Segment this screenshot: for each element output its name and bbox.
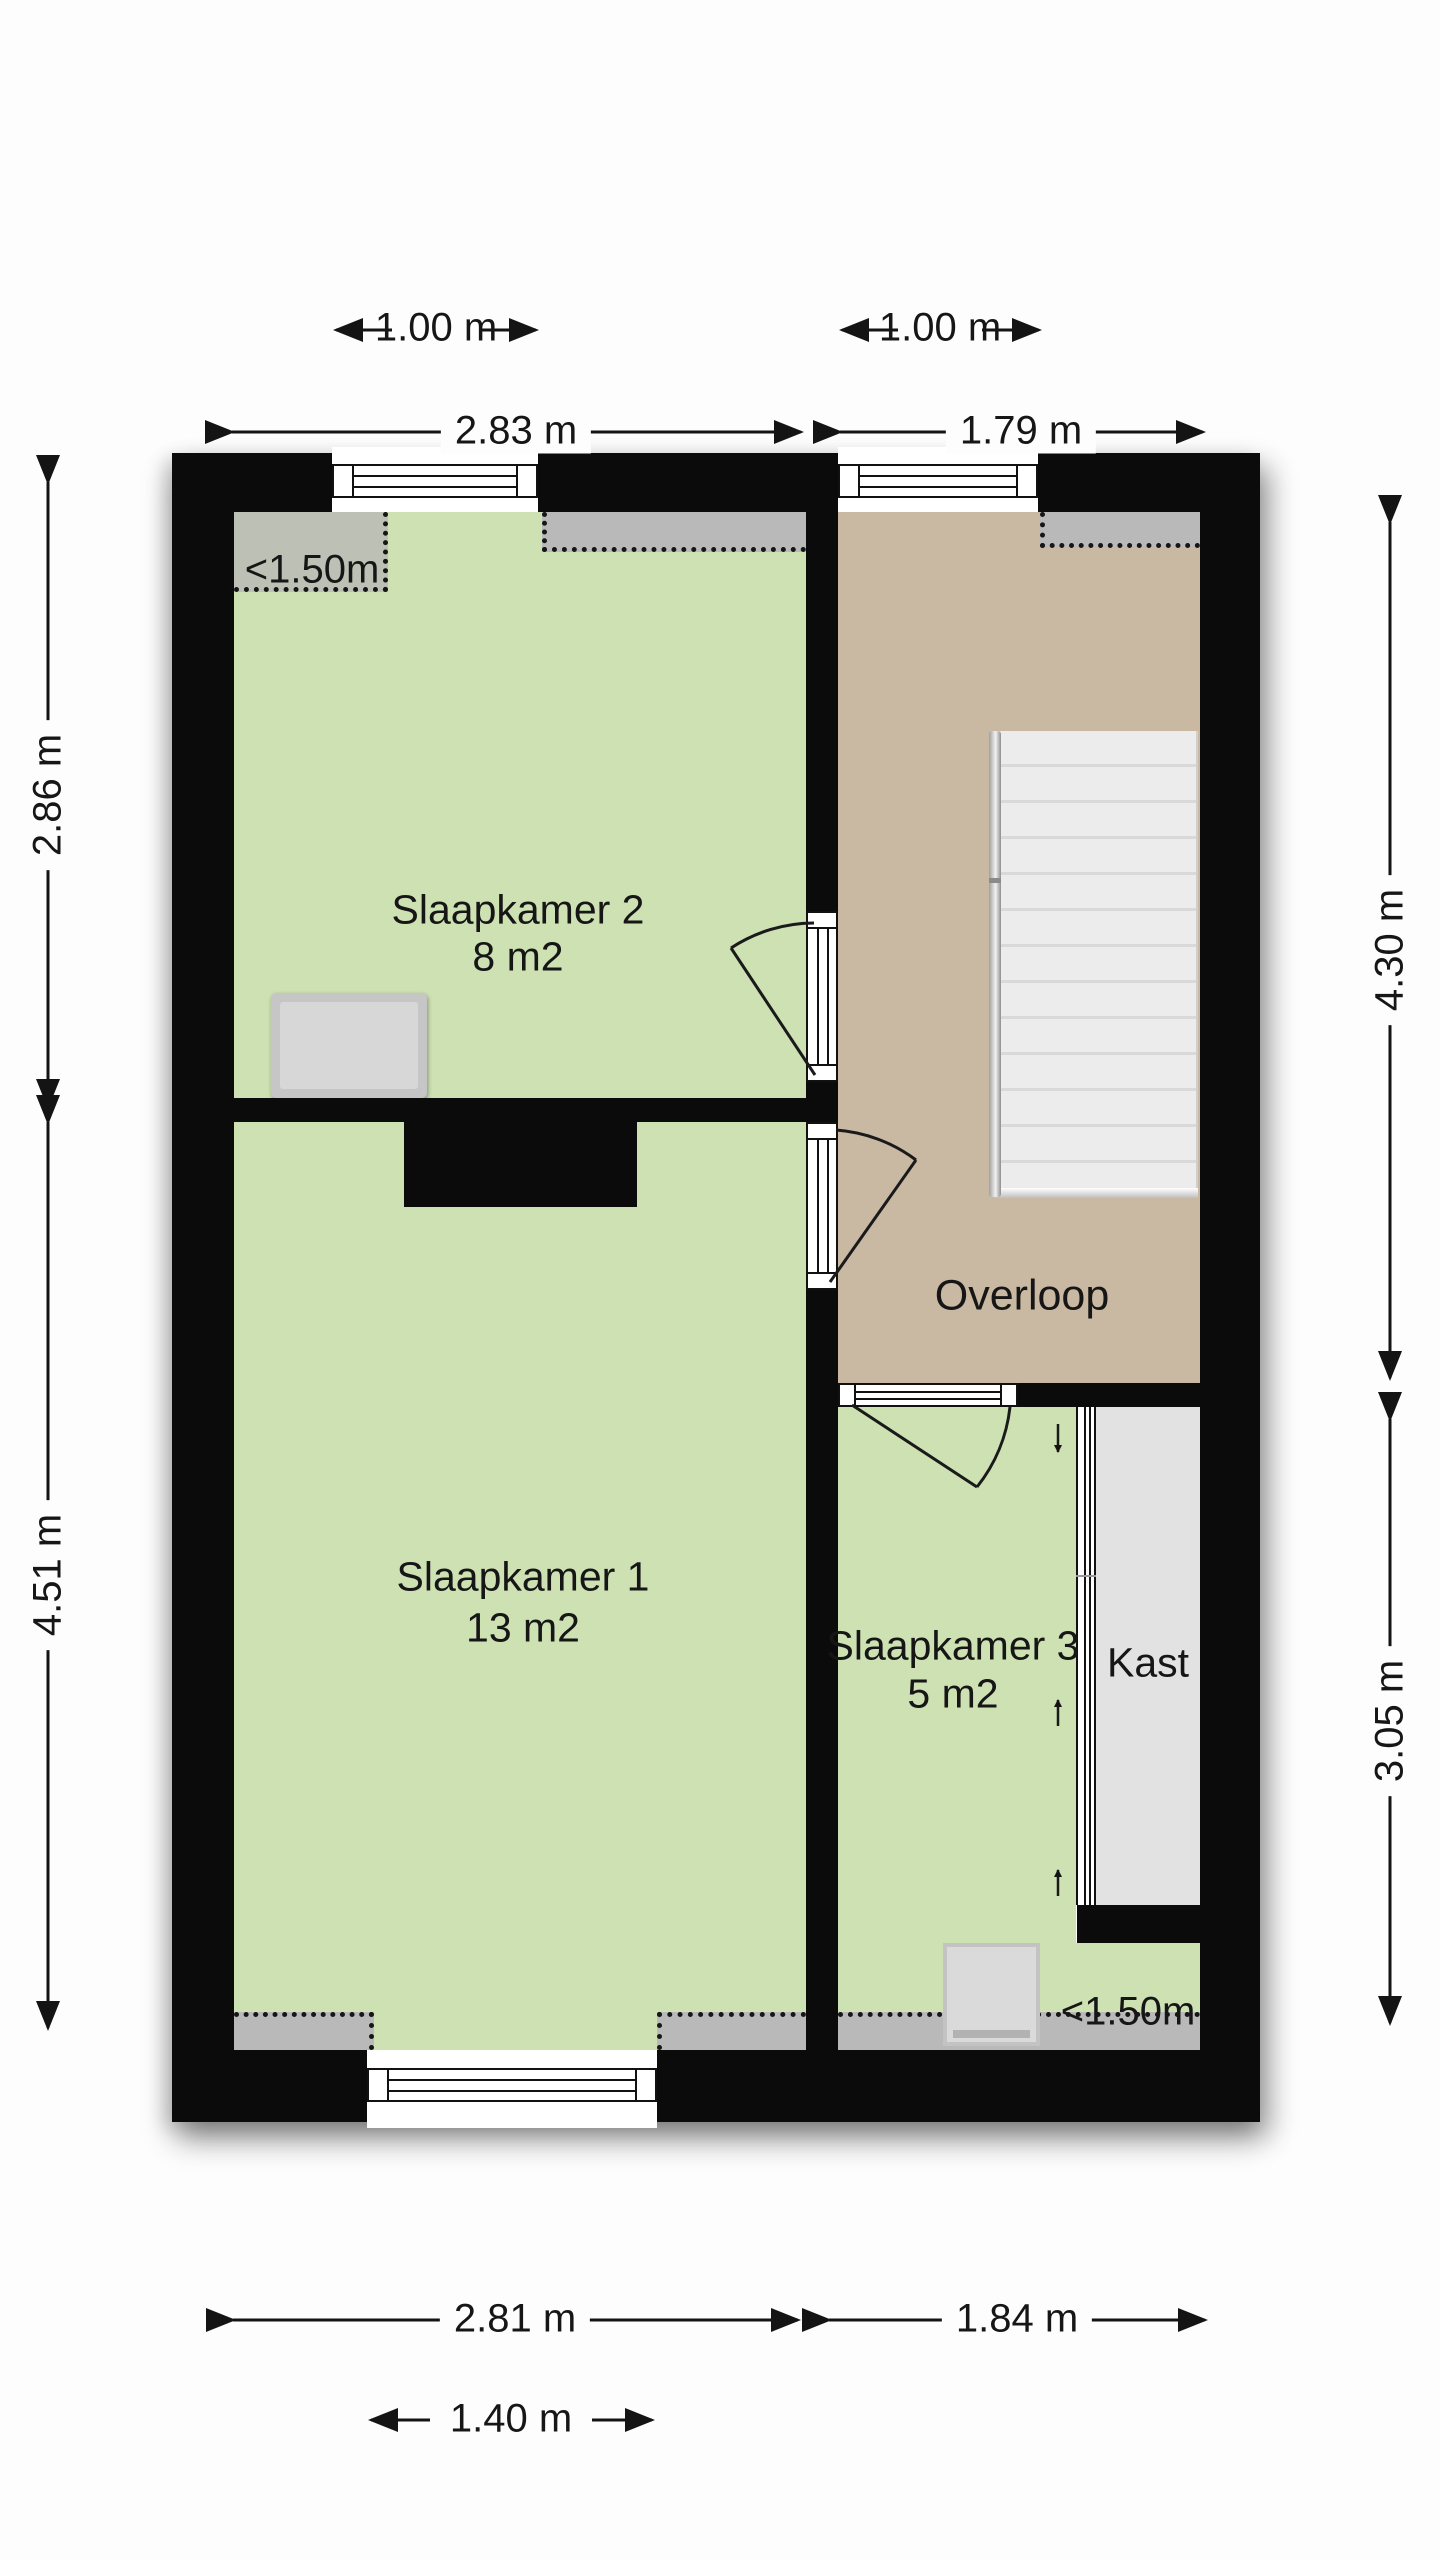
wall-divider-s1-s3 xyxy=(806,1407,838,2050)
floorplan-canvas: 1.00 m 2.83 m 1.00 m 1.79 m 2.86 m 4.51 … xyxy=(0,0,1440,2560)
door-slaapkamer3 xyxy=(838,1383,1018,1407)
dim-bottom-left-span: 2.81 m xyxy=(440,2297,590,2342)
wall-kast-stub xyxy=(1077,1905,1200,1943)
door-slaapkamer2 xyxy=(806,911,838,1082)
wall-right xyxy=(1200,453,1260,2122)
window-slaapkamer2-cap-right xyxy=(516,464,538,498)
room-label-slaapkamer1: Slaapkamer 1 xyxy=(397,1554,650,1601)
low-ceiling-zone-overloop xyxy=(1040,512,1200,548)
dim-bottom-right-span: 1.84 m xyxy=(942,2297,1092,2342)
annotation-low-ceiling-top: <1.50m xyxy=(245,548,380,593)
low-ceiling-zone-s1-right xyxy=(657,2012,806,2050)
door-slaapkamer3-post-right xyxy=(1000,1383,1018,1407)
window-slaapkamer2-cap-left xyxy=(332,464,354,498)
bed-inner xyxy=(280,1002,418,1089)
room-area-slaapkamer3: 5 m2 xyxy=(907,1671,998,1718)
dim-top-right-span: 1.79 m xyxy=(946,409,1096,454)
window-overloop-cap-right xyxy=(1016,464,1038,498)
stairs-railing xyxy=(989,731,1001,1197)
door-slaapkamer2-post-bottom xyxy=(806,1064,838,1082)
object-foot xyxy=(953,2030,1030,2038)
door-slaapkamer3-post-left xyxy=(838,1383,856,1407)
room-label-overloop: Overloop xyxy=(935,1272,1109,1321)
room-label-slaapkamer3: Slaapkamer 3 xyxy=(827,1623,1080,1670)
wall-overloop-s3 xyxy=(1018,1383,1200,1407)
chimney-block xyxy=(404,1122,637,1207)
window-overloop xyxy=(838,464,1038,498)
room-area-slaapkamer2: 8 m2 xyxy=(472,934,563,981)
room-label-kast: Kast xyxy=(1107,1640,1189,1687)
object-slaapkamer3 xyxy=(943,1943,1040,2046)
staircase xyxy=(995,731,1198,1197)
dim-right-upper: 4.30 m xyxy=(1368,875,1413,1025)
wall-divider-s2-s1 xyxy=(234,1098,806,1122)
window-slaapkamer1-cap-left xyxy=(367,2068,389,2102)
window-slaapkamer1-cap-right xyxy=(635,2068,657,2102)
window-slaapkamer1 xyxy=(367,2068,657,2102)
door-slaapkamer1 xyxy=(806,1122,838,1290)
wall-top-middle xyxy=(538,453,838,512)
dim-window-bottom: 1.40 m xyxy=(450,2397,572,2442)
wall-divider-vertical-mid xyxy=(806,1082,838,1122)
dim-left-lower: 4.51 m xyxy=(26,1500,71,1650)
wall-left xyxy=(172,453,234,2122)
dim-window-top-left: 1.00 m xyxy=(375,306,497,351)
dim-left-upper: 2.86 m xyxy=(26,720,71,870)
dim-right-lower: 3.05 m xyxy=(1368,1646,1413,1796)
window-slaapkamer2 xyxy=(332,464,538,498)
stairs-railing-joint xyxy=(989,878,1001,883)
annotation-low-ceiling-bottom: <1.50m xyxy=(1061,1990,1196,2035)
wall-bottom-right xyxy=(657,2050,1260,2122)
dim-top-left-span: 2.83 m xyxy=(441,409,591,454)
door-slaapkamer1-post-top xyxy=(806,1122,838,1140)
dim-window-top-right: 1.00 m xyxy=(879,306,1001,351)
low-ceiling-zone-s1-left xyxy=(234,2012,374,2050)
low-ceiling-zone-s2-right xyxy=(542,512,806,552)
door-slaapkamer1-post-bottom xyxy=(806,1272,838,1290)
wall-divider-vertical-low xyxy=(806,1290,838,1407)
room-label-slaapkamer2: Slaapkamer 2 xyxy=(392,887,645,934)
staircase-bottom-edge xyxy=(995,1188,1198,1198)
window-overloop-cap-left xyxy=(838,464,860,498)
bed-slaapkamer2 xyxy=(271,993,427,1098)
sliding-door-joint xyxy=(1076,1575,1096,1577)
wall-divider-vertical-upper xyxy=(806,512,838,911)
room-area-slaapkamer1: 13 m2 xyxy=(466,1605,580,1652)
door-slaapkamer2-post-top xyxy=(806,911,838,929)
wall-bottom-left xyxy=(172,2050,367,2122)
